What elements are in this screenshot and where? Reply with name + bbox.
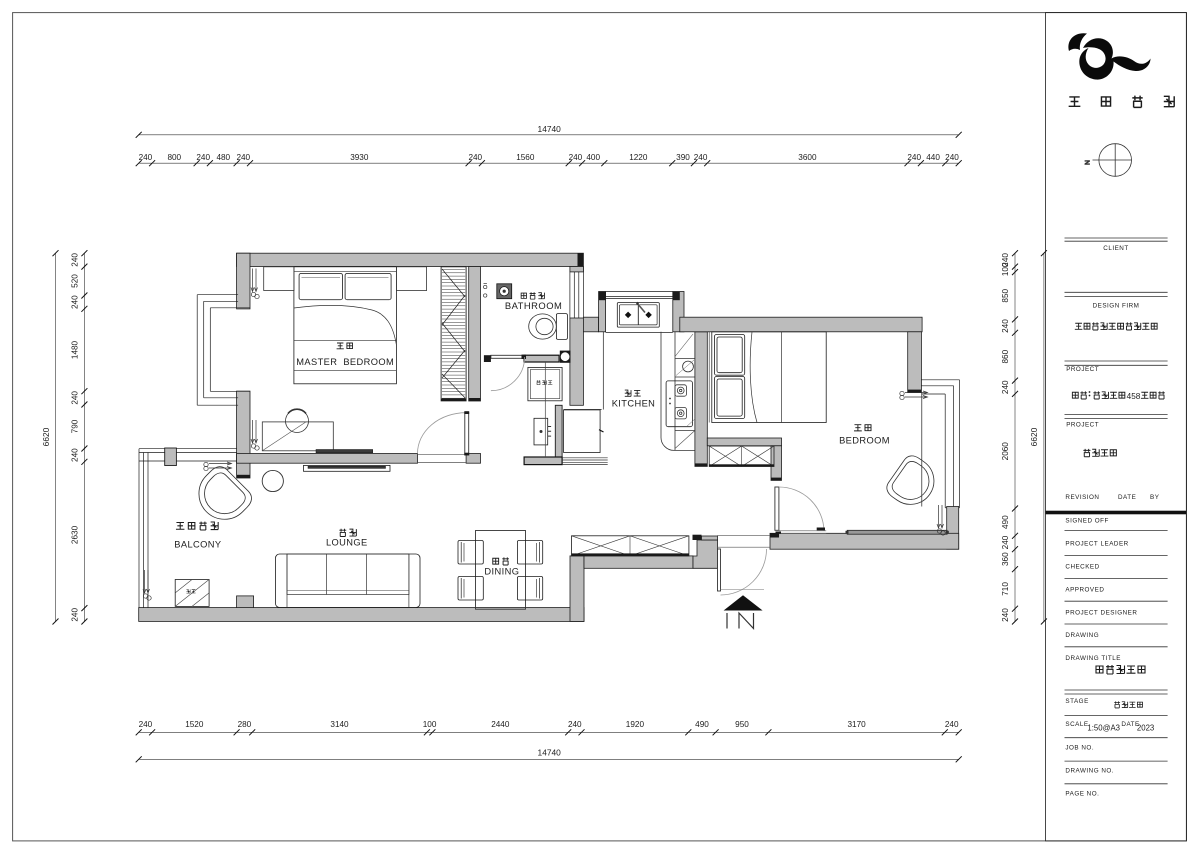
svg-text:100: 100 xyxy=(1001,262,1010,276)
svg-text:2440: 2440 xyxy=(491,720,510,729)
svg-text:490: 490 xyxy=(1001,515,1010,529)
svg-text:6620: 6620 xyxy=(41,427,51,446)
svg-text:2630: 2630 xyxy=(71,525,80,544)
svg-text:DRAWING NO.: DRAWING NO. xyxy=(1065,768,1114,775)
svg-text:APPROVED: APPROVED xyxy=(1065,587,1104,594)
svg-text:DESIGN FIRM: DESIGN FIRM xyxy=(1093,303,1140,310)
svg-text:14740: 14740 xyxy=(538,748,562,758)
svg-text:PROJECT DESIGNER: PROJECT DESIGNER xyxy=(1065,610,1137,617)
svg-text:SIGNED OFF: SIGNED OFF xyxy=(1065,518,1108,525)
svg-text:DINING: DINING xyxy=(484,567,519,577)
svg-text:520: 520 xyxy=(70,274,79,288)
svg-text:860: 860 xyxy=(1001,349,1010,363)
svg-text:BEDROOM: BEDROOM xyxy=(839,436,890,446)
svg-text:1560: 1560 xyxy=(516,153,535,162)
svg-text:SCALE: SCALE xyxy=(1065,721,1088,728)
svg-text:240: 240 xyxy=(139,153,153,162)
svg-text:850: 850 xyxy=(1001,288,1010,302)
svg-text:790: 790 xyxy=(71,419,80,433)
svg-text:KITCHEN: KITCHEN xyxy=(612,399,656,409)
svg-text:240: 240 xyxy=(945,720,959,729)
svg-text:240: 240 xyxy=(945,153,959,162)
svg-text:458: 458 xyxy=(1127,392,1141,401)
svg-text:240: 240 xyxy=(71,295,80,309)
svg-text:2060: 2060 xyxy=(1001,442,1010,461)
svg-text:1520: 1520 xyxy=(185,720,204,729)
svg-text:1:50@A3: 1:50@A3 xyxy=(1087,724,1120,733)
svg-text:PAGE NO.: PAGE NO. xyxy=(1065,791,1099,798)
svg-text:BATHROOM: BATHROOM xyxy=(505,300,562,311)
svg-text:360: 360 xyxy=(1001,552,1010,566)
svg-text:PROJECT: PROJECT xyxy=(1066,422,1099,429)
svg-text:3600: 3600 xyxy=(798,153,817,162)
svg-text:240: 240 xyxy=(70,391,79,405)
svg-text:240: 240 xyxy=(70,448,79,462)
svg-text:240: 240 xyxy=(907,153,921,162)
svg-text:1480: 1480 xyxy=(71,340,80,359)
svg-text:CLIENT: CLIENT xyxy=(1103,245,1128,252)
svg-text:1220: 1220 xyxy=(629,153,648,162)
svg-text:JOB NO.: JOB NO. xyxy=(1065,745,1094,752)
svg-text:100: 100 xyxy=(423,720,437,729)
svg-text:BY: BY xyxy=(1150,494,1160,501)
svg-text:400: 400 xyxy=(586,153,600,162)
svg-text:240: 240 xyxy=(1001,380,1010,394)
svg-text:REVISION: REVISION xyxy=(1065,494,1099,501)
svg-text:DRAWING TITLE: DRAWING TITLE xyxy=(1065,655,1121,662)
svg-text:240: 240 xyxy=(196,153,210,162)
svg-text:710: 710 xyxy=(1001,582,1010,596)
svg-text:800: 800 xyxy=(167,153,181,162)
svg-text:CHECKED: CHECKED xyxy=(1065,564,1099,571)
svg-text:280: 280 xyxy=(238,720,252,729)
svg-text:PROJECT LEADER: PROJECT LEADER xyxy=(1065,541,1128,548)
svg-text:DRAWING: DRAWING xyxy=(1065,632,1099,639)
svg-text:BALCONY: BALCONY xyxy=(174,540,221,550)
svg-text:480: 480 xyxy=(216,153,230,162)
svg-text:490: 490 xyxy=(695,720,709,729)
svg-text:DATE: DATE xyxy=(1118,494,1136,501)
svg-text:440: 440 xyxy=(926,153,940,162)
svg-text:6620: 6620 xyxy=(1029,427,1039,446)
svg-text:240: 240 xyxy=(694,153,708,162)
svg-text:240: 240 xyxy=(468,153,482,162)
svg-text:3140: 3140 xyxy=(330,720,349,729)
svg-text:MASTER BEDROOM: MASTER BEDROOM xyxy=(296,357,394,367)
svg-text:N: N xyxy=(1085,160,1092,165)
svg-text:240: 240 xyxy=(71,253,80,267)
svg-text:STAGE: STAGE xyxy=(1065,698,1088,705)
svg-text:390: 390 xyxy=(676,153,690,162)
svg-text:240: 240 xyxy=(139,720,153,729)
svg-text:3930: 3930 xyxy=(350,153,369,162)
svg-text:950: 950 xyxy=(735,720,749,729)
svg-text:240: 240 xyxy=(1001,608,1010,622)
svg-text:3170: 3170 xyxy=(847,720,866,729)
svg-text:1920: 1920 xyxy=(626,720,645,729)
svg-text:240: 240 xyxy=(568,720,582,729)
svg-text:240: 240 xyxy=(236,153,250,162)
svg-text:240: 240 xyxy=(1001,319,1010,333)
svg-text:240: 240 xyxy=(1001,535,1010,549)
svg-text:LOUNGE: LOUNGE xyxy=(326,537,368,547)
svg-text:14740: 14740 xyxy=(538,124,562,134)
svg-text:2023: 2023 xyxy=(1137,724,1154,733)
svg-text:240: 240 xyxy=(569,153,583,162)
svg-text:240: 240 xyxy=(71,608,80,622)
svg-text:PROJECT: PROJECT xyxy=(1066,366,1099,373)
